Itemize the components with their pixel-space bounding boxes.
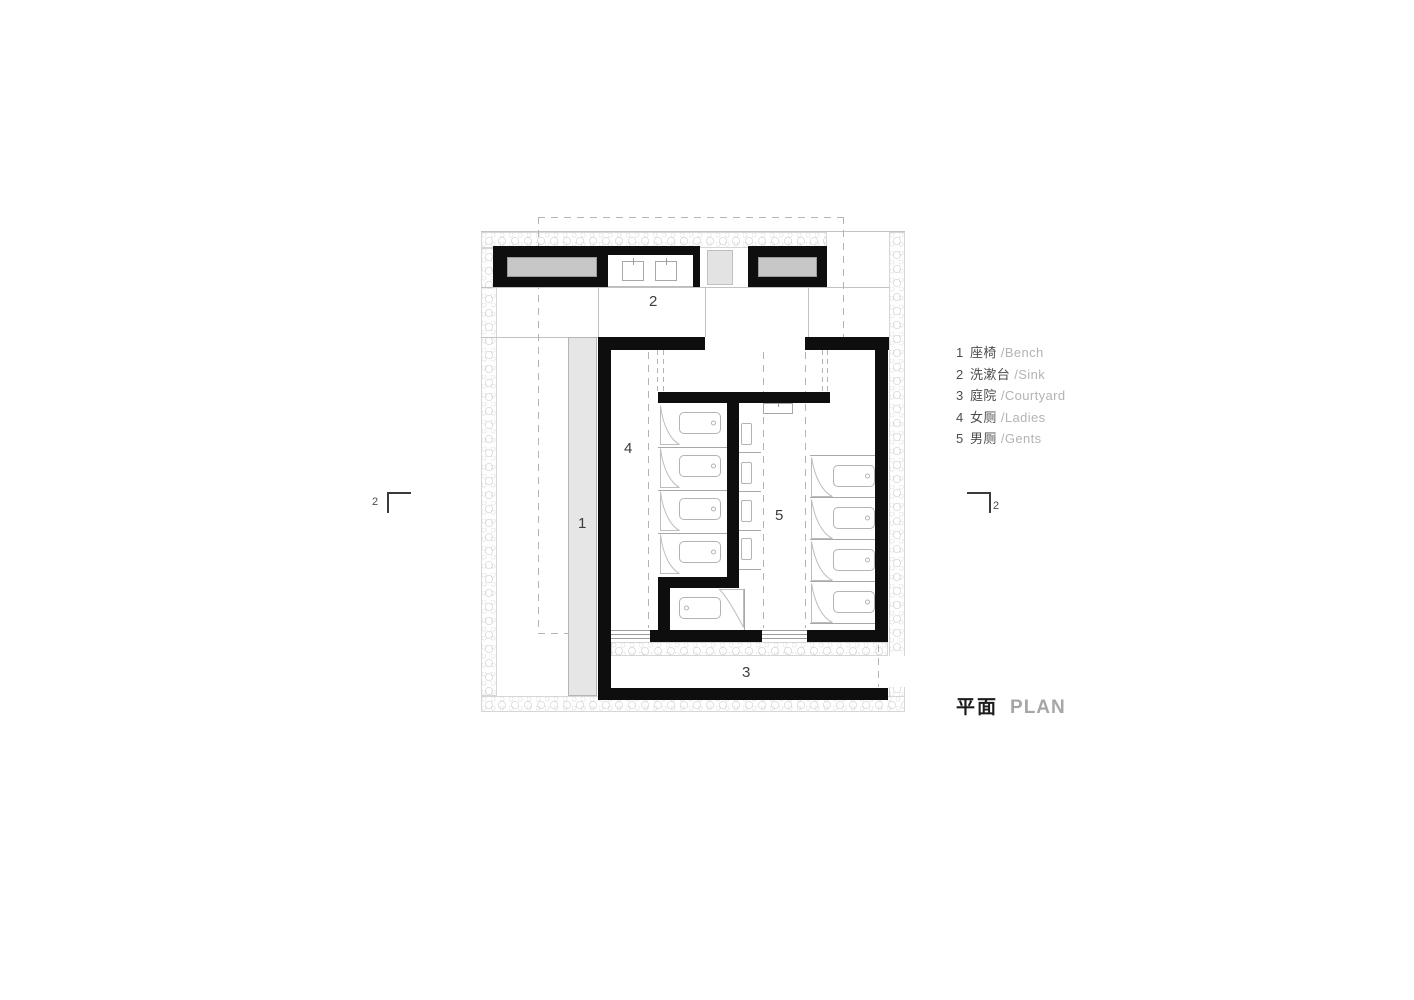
urinal-fixture xyxy=(741,500,752,522)
roof-outline-top xyxy=(538,217,843,218)
door-swing xyxy=(811,541,833,581)
ladies-door-mark-2 xyxy=(663,350,664,392)
gents-door-mark-1 xyxy=(822,350,823,392)
paving-hatch-courtyard xyxy=(611,642,888,656)
door-swing xyxy=(719,589,744,628)
legend-item-sink: 2 洗漱台 /Sink xyxy=(956,364,1066,386)
room-label-courtyard: 3 xyxy=(742,665,750,680)
legend-item-bench: 1 座椅 /Bench xyxy=(956,342,1066,364)
room-label-bench: 1 xyxy=(578,516,586,531)
legend-label-en: /Ladies xyxy=(1001,410,1046,425)
legend-label-cn: 座椅 xyxy=(970,342,997,361)
legend-number: 5 xyxy=(956,431,970,446)
toilet-fixture xyxy=(833,507,875,529)
legend-item-courtyard: 3 庭院 /Courtyard xyxy=(956,385,1066,407)
sink-fixture xyxy=(622,261,644,281)
door-swing xyxy=(660,405,680,445)
floor-plan-drawing: 1 2 3 4 5 2 2 1 座椅 /Bench 2 洗漱台 /Sink 3 … xyxy=(0,0,1414,1000)
sink-alcove xyxy=(608,255,693,287)
door-threshold-gents xyxy=(762,630,807,642)
room-label-sink: 2 xyxy=(649,294,657,309)
section-marker-right-vline xyxy=(989,492,991,513)
paving-edge-line xyxy=(481,287,889,288)
roof-outline-right xyxy=(843,217,844,337)
door-swing xyxy=(811,499,833,539)
drawing-title: 平面 PLAN xyxy=(956,692,1066,719)
legend-number: 4 xyxy=(956,410,970,425)
entrance-walkway xyxy=(707,250,733,285)
courtyard-south-wall xyxy=(598,688,888,700)
bench-northwest xyxy=(507,257,597,277)
gents-basin-fixture xyxy=(763,403,793,414)
legend-item-gents: 5 男厕 /Gents xyxy=(956,428,1066,450)
legend-label-en: /Gents xyxy=(1001,431,1042,446)
stall-divider xyxy=(810,497,875,498)
toilet-fixture xyxy=(679,455,721,477)
door-swing xyxy=(660,448,680,488)
paving-hatch-left xyxy=(481,248,497,696)
urinal-fixture xyxy=(741,538,752,560)
toilet-fixture xyxy=(833,465,875,487)
section-marker-left-hline xyxy=(387,492,411,494)
room-label-ladies: 4 xyxy=(624,441,632,456)
sink-fixture xyxy=(655,261,677,281)
urinal-fixture xyxy=(741,423,752,445)
central-partition-wall xyxy=(727,403,739,580)
legend-label-en: /Courtyard xyxy=(1001,388,1066,403)
stall-block-north-wall xyxy=(658,392,830,403)
toilet-fixture xyxy=(679,541,721,563)
courtyard-side-opening xyxy=(888,656,906,687)
ladies-door-mark-1 xyxy=(657,350,658,392)
door-swing xyxy=(660,491,680,531)
legend-label-cn: 庭院 xyxy=(970,385,997,404)
paving-hatch-right xyxy=(889,232,905,712)
toilet-fixture xyxy=(833,591,875,613)
bench-northeast xyxy=(758,257,817,277)
urinal-divider xyxy=(739,452,761,453)
toilet-fixture xyxy=(833,549,875,571)
stall-front-line xyxy=(744,589,745,630)
urinal-divider xyxy=(739,569,761,570)
legend-item-ladies: 4 女厕 /Ladies xyxy=(956,407,1066,429)
toilet-fixture xyxy=(679,597,721,619)
courtyard-gate-dash xyxy=(878,645,879,687)
urinal-divider xyxy=(739,530,761,531)
building-north-wall-west xyxy=(598,337,705,350)
legend-number: 1 xyxy=(956,345,970,360)
section-marker-right-label: 2 xyxy=(993,500,999,512)
building-south-wall xyxy=(611,630,883,642)
door-swing xyxy=(811,457,833,497)
urinal-divider xyxy=(739,491,761,492)
overhead-dash-ladies xyxy=(648,352,649,628)
building-east-wall xyxy=(875,337,888,642)
legend-number: 3 xyxy=(956,388,970,403)
stall-divider xyxy=(810,455,875,456)
legend-number: 2 xyxy=(956,367,970,382)
urinal-fixture xyxy=(741,462,752,484)
legend: 1 座椅 /Bench 2 洗漱台 /Sink 3 庭院 /Courtyard … xyxy=(956,342,1066,450)
door-threshold-ladies xyxy=(611,630,650,642)
section-marker-left-vline xyxy=(387,492,389,513)
drawing-title-en: PLAN xyxy=(1010,697,1066,719)
building-west-wall xyxy=(598,337,611,700)
accessible-stall-west-wall xyxy=(658,588,670,630)
room-label-gents: 5 xyxy=(775,508,783,523)
lobby-line-left xyxy=(598,287,599,337)
legend-label-en: /Sink xyxy=(1014,367,1045,382)
stall-block-south-wall xyxy=(658,577,739,588)
toilet-fixture xyxy=(679,498,721,520)
section-marker-left: 2 xyxy=(372,490,412,514)
door-swing xyxy=(811,583,833,623)
legend-label-en: /Bench xyxy=(1001,345,1044,360)
section-marker-right-hline xyxy=(967,492,991,494)
stall-divider xyxy=(810,581,875,582)
lobby-line-east xyxy=(808,287,809,337)
door-swing xyxy=(660,534,680,574)
stall-divider xyxy=(810,539,875,540)
stall-divider xyxy=(810,623,875,624)
gents-door-mark-2 xyxy=(827,350,828,392)
legend-label-cn: 女厕 xyxy=(970,407,997,426)
legend-label-cn: 洗漱台 xyxy=(970,364,1010,383)
lobby-line-right xyxy=(705,287,706,337)
drawing-title-cn: 平面 xyxy=(956,692,998,719)
legend-label-cn: 男厕 xyxy=(970,428,997,447)
section-marker-right: 2 xyxy=(965,490,1005,514)
toilet-fixture xyxy=(679,412,721,434)
section-marker-left-label: 2 xyxy=(372,496,378,508)
